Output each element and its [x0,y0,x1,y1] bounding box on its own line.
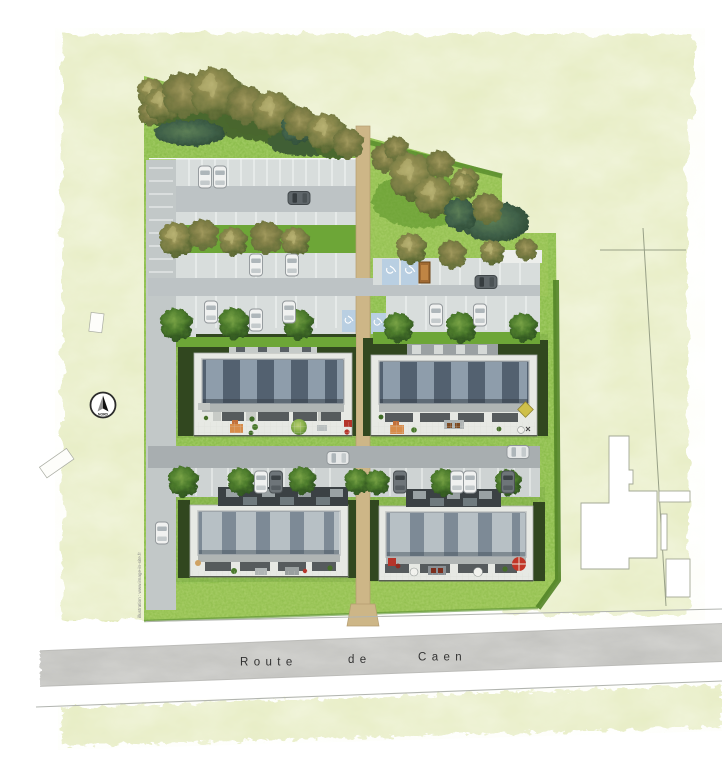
svg-text:Caen: Caen [418,652,467,664]
svg-text:Route: Route [240,657,298,669]
svg-text:illustration : www.image-in-si: illustration : www.image-in-site.fr [137,552,142,618]
svg-text:NORD: NORD [98,413,109,417]
svg-text:de: de [348,654,372,666]
